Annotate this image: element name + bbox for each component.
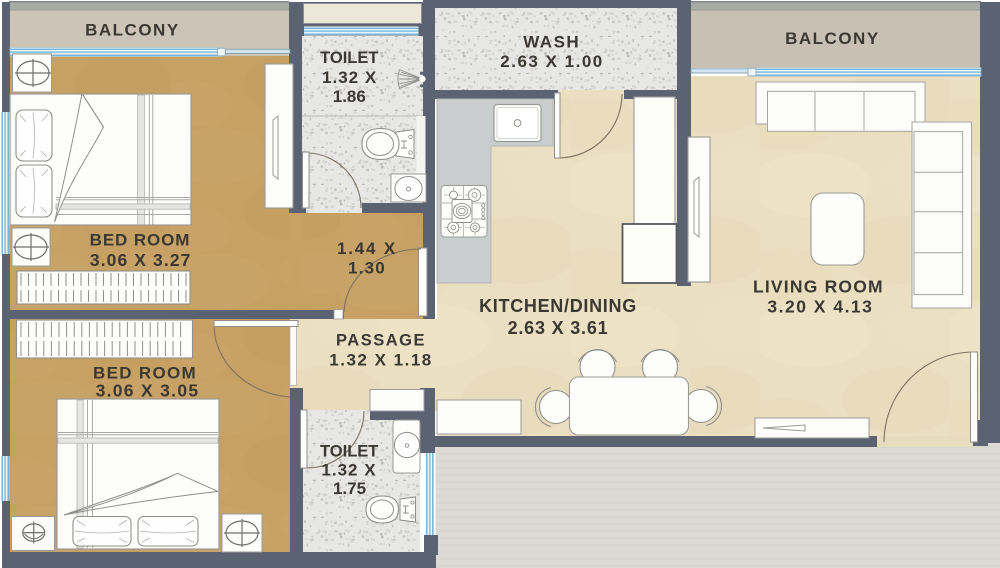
svg-text:BALCONY: BALCONY: [785, 29, 880, 48]
svg-text:TOILET: TOILET: [320, 442, 378, 460]
svg-text:2.63 X 3.61: 2.63 X 3.61: [508, 318, 609, 338]
svg-text:KITCHEN/DINING: KITCHEN/DINING: [479, 296, 637, 316]
svg-text:1.30: 1.30: [348, 259, 386, 278]
svg-text:2.63 X 1.00: 2.63 X 1.00: [500, 52, 603, 71]
svg-text:3.06 X 3.27: 3.06 X 3.27: [90, 250, 192, 270]
svg-text:3.20 X 4.13: 3.20 X 4.13: [767, 297, 873, 317]
svg-text:1.44 X: 1.44 X: [337, 239, 397, 258]
svg-text:1.75: 1.75: [333, 479, 366, 498]
svg-text:1.32 X 1.18: 1.32 X 1.18: [329, 351, 432, 370]
svg-text:PASSAGE: PASSAGE: [336, 331, 426, 349]
svg-text:1.32 X: 1.32 X: [322, 68, 377, 87]
svg-text:1.32 X: 1.32 X: [321, 461, 376, 480]
svg-text:1.86: 1.86: [333, 87, 366, 106]
svg-text:BALCONY: BALCONY: [85, 21, 180, 40]
svg-text:LIVING ROOM: LIVING ROOM: [753, 277, 884, 297]
svg-text:3.06 X 3.05: 3.06 X 3.05: [96, 381, 200, 401]
svg-text:WASH: WASH: [523, 33, 580, 52]
svg-text:TOILET: TOILET: [320, 49, 378, 67]
svg-text:BED ROOM: BED ROOM: [90, 231, 191, 250]
